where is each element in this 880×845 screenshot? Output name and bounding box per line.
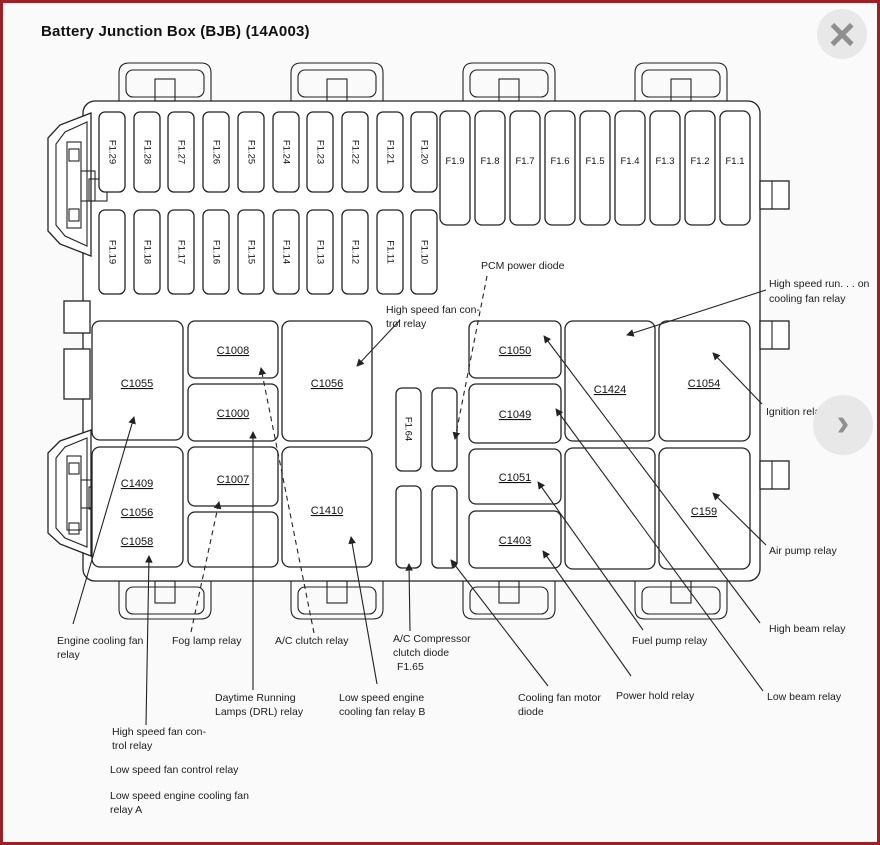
fuse-f1-9: F1.9 <box>440 111 470 225</box>
fuse-f1-8: F1.8 <box>475 111 505 225</box>
box-c1049: C1049 <box>469 384 561 443</box>
box-c1008: C1008 <box>188 321 278 378</box>
box-c1410: C1410 <box>282 447 372 567</box>
label-engine-cooling-2: relay <box>57 649 81 661</box>
bjb-diagram: F1.29 F1.28 F1.27 F1.26 F1.25 F1.24 F1.2… <box>3 3 880 845</box>
fuse-label: F1.11 <box>385 240 396 264</box>
next-button[interactable]: › <box>813 395 873 455</box>
fuse-label: F1.18 <box>142 240 153 264</box>
connector-label: C1049 <box>499 409 531 421</box>
label-low-beam-relay: Low beam relay <box>767 691 842 703</box>
fuse-label: F1.22 <box>350 140 361 164</box>
bottom-mounting-tabs <box>119 581 727 619</box>
fuse-label: F1.4 <box>620 156 639 167</box>
fuse-f1-11: F1.11 <box>377 210 403 294</box>
connector-label: C1056 <box>121 507 153 519</box>
fuse-f1-14: F1.14 <box>273 210 299 294</box>
label-power-hold-relay: Power hold relay <box>616 690 695 702</box>
fuse-label: F1.21 <box>385 140 396 164</box>
close-button[interactable]: × <box>817 9 867 59</box>
fuse-f1-18: F1.18 <box>134 210 160 294</box>
fuse-label: F1.64 <box>403 417 414 441</box>
fuse-f1-13: F1.13 <box>307 210 333 294</box>
connector-label: C1409 <box>121 478 153 490</box>
fuse-f1-20: F1.20 <box>411 112 437 192</box>
top-mounting-tabs <box>119 63 727 101</box>
connector-label: C1403 <box>499 535 531 547</box>
fuse-label: F1.17 <box>176 240 187 264</box>
label-ac-clutch-relay: A/C clutch relay <box>275 635 349 647</box>
label-high-beam-relay: High beam relay <box>769 623 846 635</box>
fuse-f1-23: F1.23 <box>307 112 333 192</box>
connector-label: C1000 <box>217 408 249 420</box>
label-low-speed-fan-control: Low speed fan control relay <box>110 764 239 776</box>
fuse-f1-5: F1.5 <box>580 111 610 225</box>
fuse-label: F1.16 <box>211 240 222 264</box>
label-fog-lamp-relay: Fog lamp relay <box>172 635 242 647</box>
label-ac-compressor-1: A/C Compressor <box>393 633 471 645</box>
fuse-label: F1.13 <box>315 240 326 264</box>
fuse-f1-10: F1.10 <box>411 210 437 294</box>
label-cooling-fan-motor-2: diode <box>518 706 544 718</box>
connector-label: C1007 <box>217 474 249 486</box>
box-c1054: C1054 <box>659 321 750 441</box>
connector-label: C1056 <box>311 378 343 390</box>
fuse-label: F1.28 <box>142 140 153 164</box>
fuse-f1-25: F1.25 <box>238 112 264 192</box>
close-icon: × <box>829 11 856 57</box>
label-ac-compressor-3: F1.65 <box>397 661 424 673</box>
fuse-label: F1.23 <box>315 140 326 164</box>
label-high-speed-run-2: cooling fan relay <box>769 293 846 305</box>
fuse-label: F1.15 <box>246 240 257 264</box>
fuse-f1-28: F1.28 <box>134 112 160 192</box>
box-unlabeled-mid-bottom-2 <box>432 486 457 568</box>
fuse-label: F1.6 <box>550 156 569 167</box>
fuse-f1-64: F1.64 <box>396 388 421 471</box>
fuse-label: F1.7 <box>515 156 534 167</box>
fuse-f1-26: F1.26 <box>203 112 229 192</box>
label-low-speed-a-1: Low speed engine cooling fan <box>110 790 249 802</box>
fuse-f1-12: F1.12 <box>342 210 368 294</box>
label-high-speed-fan-control-upper-2: trol relay <box>386 318 427 330</box>
connector-label: C1008 <box>217 345 249 357</box>
label-drl-1: Daytime Running <box>215 692 296 704</box>
box-c1000: C1000 <box>188 384 278 441</box>
connector-label: C1054 <box>688 378 720 390</box>
box-c1409-c1056-c1058: C1409 C1056 C1058 <box>92 447 183 567</box>
connector-label: C1051 <box>499 472 531 484</box>
connector-label: C1058 <box>121 536 153 548</box>
label-air-pump-relay: Air pump relay <box>769 545 837 557</box>
label-low-speed-b-1: Low speed engine <box>339 692 424 704</box>
fuse-row-top-right: F1.9 F1.8 F1.7 F1.6 F1.5 F1.4 F1.3 F1.2 … <box>440 111 750 225</box>
fuse-f1-15: F1.15 <box>238 210 264 294</box>
connector-label: C1424 <box>594 384 626 396</box>
fuse-label: F1.20 <box>419 140 430 164</box>
label-drl-2: Lamps (DRL) relay <box>215 706 304 718</box>
connector-label: C159 <box>691 506 717 518</box>
fuse-label: F1.14 <box>281 240 292 264</box>
label-cooling-fan-motor-1: Cooling fan motor <box>518 692 601 704</box>
fuse-label: F1.10 <box>419 240 430 264</box>
box-unlabeled-mid-top <box>432 388 457 471</box>
fuse-f1-1: F1.1 <box>720 111 750 225</box>
box-c1403: C1403 <box>469 511 561 568</box>
fuse-f1-6: F1.6 <box>545 111 575 225</box>
fuse-label: F1.29 <box>107 140 118 164</box>
fuse-label: F1.19 <box>107 240 118 264</box>
fuse-label: F1.26 <box>211 140 222 164</box>
label-high-speed-run-1: High speed run. . . on <box>769 278 870 290</box>
fuse-f1-16: F1.16 <box>203 210 229 294</box>
fuse-label: F1.2 <box>690 156 709 167</box>
box-c1055: C1055 <box>92 321 183 440</box>
fuse-label: F1.12 <box>350 240 361 264</box>
fuse-label: F1.3 <box>655 156 674 167</box>
fuse-f1-7: F1.7 <box>510 111 540 225</box>
fuse-f1-22: F1.22 <box>342 112 368 192</box>
chevron-right-icon: › <box>837 404 850 442</box>
fuse-label: F1.25 <box>246 140 257 164</box>
fuse-f1-19: F1.19 <box>99 210 125 294</box>
fuse-f1-27: F1.27 <box>168 112 194 192</box>
box-unlabeled-mid-bottom-1 <box>396 486 421 568</box>
label-ac-compressor-2: clutch diode <box>393 647 449 659</box>
box-c1007: C1007 <box>188 447 278 506</box>
fuse-label: F1.24 <box>281 140 292 164</box>
label-pcm-power-diode: PCM power diode <box>481 260 565 272</box>
viewer-frame: Battery Junction Box (BJB) (14A003) <box>0 0 880 845</box>
box-unlabeled-left <box>188 512 278 567</box>
fuse-f1-2: F1.2 <box>685 111 715 225</box>
right-edge-tabs <box>760 181 789 489</box>
fuse-f1-3: F1.3 <box>650 111 680 225</box>
fuse-f1-17: F1.17 <box>168 210 194 294</box>
label-fuel-pump-relay: Fuel pump relay <box>632 635 708 647</box>
fuse-f1-29: F1.29 <box>99 112 125 192</box>
label-high-speed-fan-control-lower-2: trol relay <box>112 740 153 752</box>
fuse-f1-24: F1.24 <box>273 112 299 192</box>
left-edge-tabs <box>64 301 90 399</box>
box-c1050: C1050 <box>469 321 561 378</box>
label-high-speed-fan-control-lower-1: High speed fan con- <box>112 726 206 738</box>
connector-label: C1410 <box>311 505 343 517</box>
fuse-label: F1.1 <box>725 156 744 167</box>
box-c1056-top: C1056 <box>282 321 372 441</box>
fuse-label: F1.8 <box>480 156 499 167</box>
label-high-speed-fan-control-upper-1: High speed fan con- <box>386 304 480 316</box>
label-low-speed-b-2: cooling fan relay B <box>339 706 425 718</box>
connector-label: C1050 <box>499 345 531 357</box>
label-engine-cooling-1: Engine cooling fan <box>57 635 144 647</box>
fuse-label: F1.5 <box>585 156 604 167</box>
fuse-f1-4: F1.4 <box>615 111 645 225</box>
fuse-label: F1.27 <box>176 140 187 164</box>
fuse-label: F1.9 <box>445 156 464 167</box>
connector-label: C1055 <box>121 378 153 390</box>
fuse-f1-21: F1.21 <box>377 112 403 192</box>
box-c159: C159 <box>659 448 750 569</box>
label-low-speed-a-2: relay A <box>110 804 142 816</box>
